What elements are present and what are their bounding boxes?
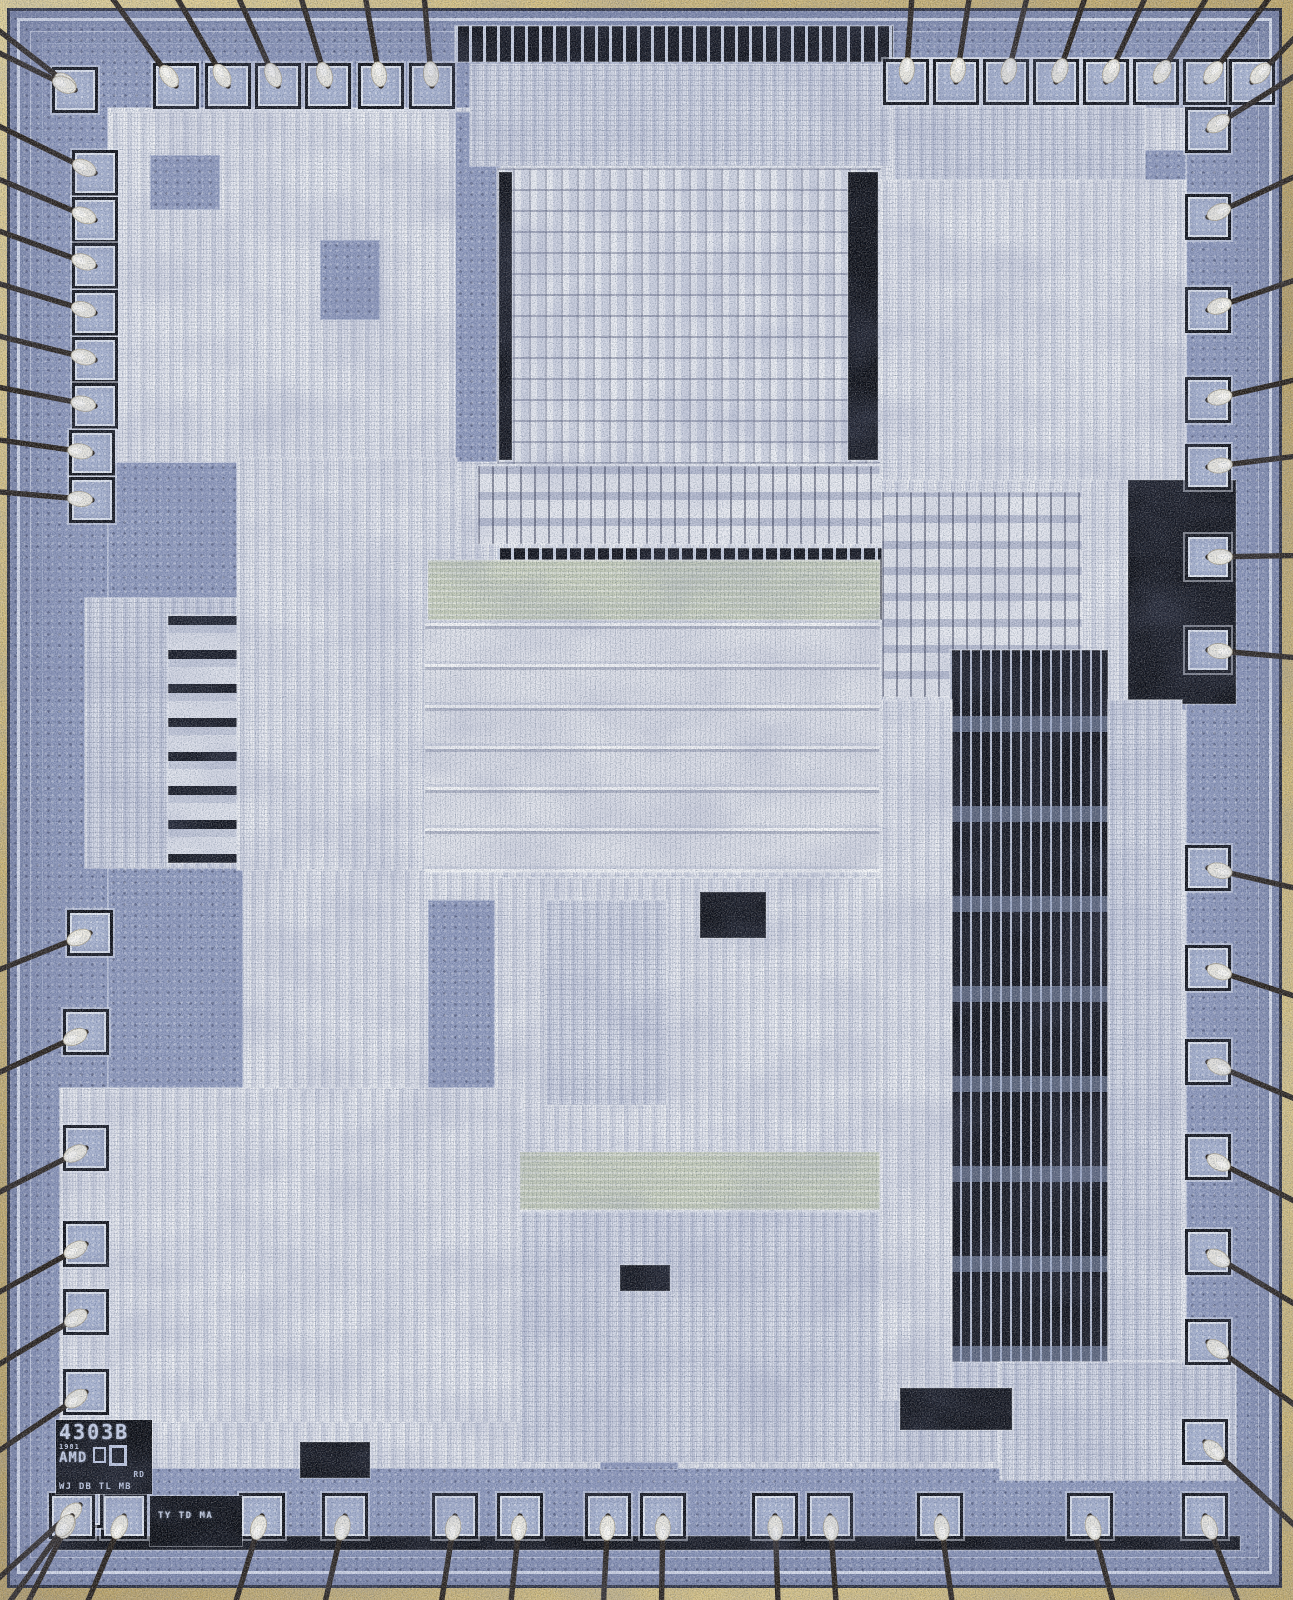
- bond-wire: [0, 422, 92, 500]
- die-marking-row: 1981 AMD: [59, 1444, 149, 1466]
- bond-wire: [1205, 1516, 1293, 1600]
- bond-wire: [0, 0, 95, 173]
- bond-wires-layer: [0, 0, 1293, 1600]
- bond-wire: [0, 0, 95, 220]
- bond-wire: [354, 0, 432, 86]
- bond-wire: [0, 50, 95, 313]
- bond-wire: [1208, 1252, 1293, 1600]
- die-photo: 4303B 1981 AMD RD WJ DB TL MB TY TD MA: [0, 0, 1293, 1600]
- die-marking-manufacturer: AMD: [59, 1451, 87, 1465]
- bond-wire: [1205, 1442, 1293, 1600]
- bond-wire: [1208, 968, 1293, 1246]
- bond-wire: [65, 0, 328, 86]
- bond-wire: [1208, 1157, 1293, 1566]
- bond-wire: [956, 0, 1097, 82]
- bond-wire: [0, 933, 90, 1270]
- bond-wire: [1208, 1062, 1293, 1414]
- die-marking-initials: WJ DB TL MB: [59, 1482, 149, 1492]
- die-marking-part-number: 4303B: [59, 1422, 149, 1443]
- bond-wire: [830, 1516, 893, 1600]
- die-marking-revision: RD: [133, 1471, 145, 1479]
- bond-wire: [1156, 0, 1293, 82]
- die-marking-initials-2: TY TD MA: [158, 1511, 242, 1521]
- bond-wire: [0, 1148, 86, 1557]
- die-marking-panel-2: TY TD MA: [150, 1496, 242, 1546]
- bond-wire: [1208, 0, 1293, 217]
- bond-wire: [1208, 357, 1293, 467]
- bond-wire: [426, 1516, 520, 1600]
- die-marking-panel: 4303B 1981 AMD RD WJ DB TL MB: [56, 1420, 152, 1494]
- bond-wire: [940, 1516, 1065, 1600]
- bond-wire: [1090, 1516, 1293, 1600]
- logo-box-notched-icon: [93, 1447, 106, 1463]
- logo-box-outline-icon: [109, 1445, 127, 1466]
- bond-wire: [0, 0, 176, 86]
- bond-wire: [1208, 650, 1293, 728]
